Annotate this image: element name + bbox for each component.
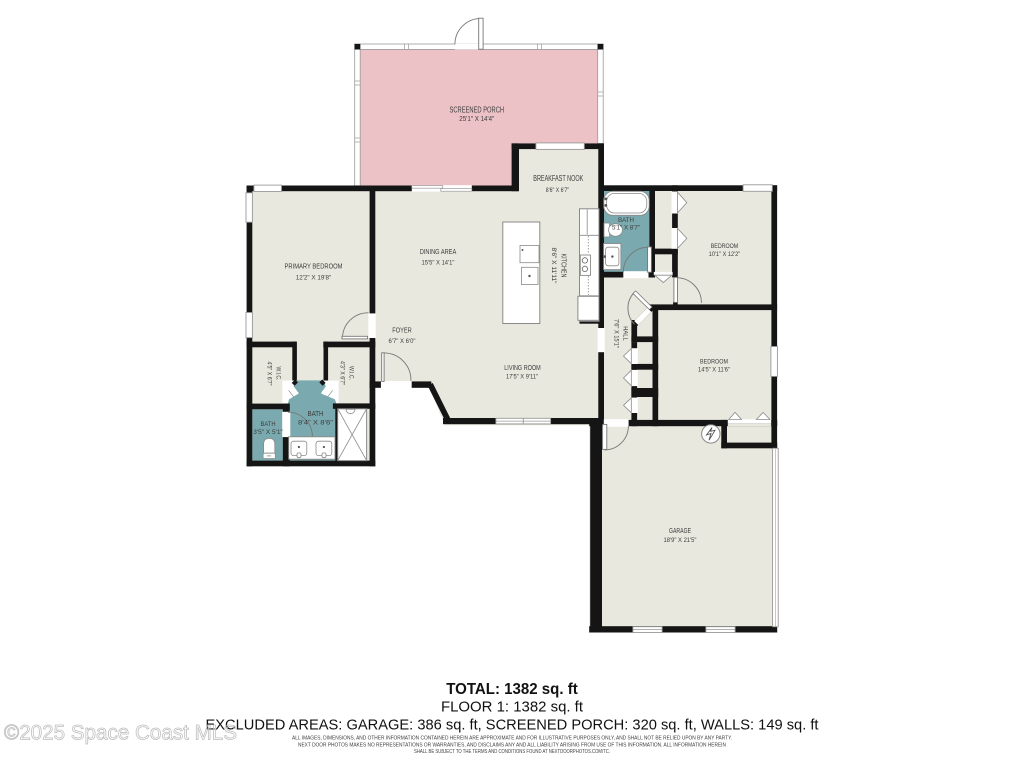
- svg-text:NEXT DOOR PHOTOS MAKES NO REPR: NEXT DOOR PHOTOS MAKES NO REPRESENTATION…: [298, 742, 726, 748]
- svg-text:SHALL BE SUBJECT TO THE TERMS: SHALL BE SUBJECT TO THE TERMS AND CONDIT…: [414, 749, 610, 755]
- svg-text:7'6" X 15'1": 7'6" X 15'1": [613, 319, 620, 348]
- svg-text:15'5" X 14'1": 15'5" X 14'1": [422, 260, 455, 267]
- svg-text:BATH: BATH: [261, 421, 276, 428]
- svg-text:GARAGE: GARAGE: [669, 528, 691, 535]
- svg-text:BATH: BATH: [618, 217, 634, 224]
- svg-text:17'5" X 9'11": 17'5" X 9'11": [506, 373, 538, 380]
- svg-text:FLOOR 1: 1382 sq. ft: FLOOR 1: 1382 sq. ft: [441, 699, 584, 716]
- svg-text:10'1" X 12'2": 10'1" X 12'2": [709, 251, 741, 258]
- svg-text:EXCLUDED AREAS: GARAGE: 386 sq: EXCLUDED AREAS: GARAGE: 386 sq. ft, SCRE…: [206, 717, 820, 734]
- svg-text:W.I.C.: W.I.C.: [348, 366, 355, 380]
- svg-text:4'5" X 6'7": 4'5" X 6'7": [266, 362, 272, 386]
- svg-text:HALL: HALL: [622, 326, 629, 341]
- svg-text:3'5" X 5'1": 3'5" X 5'1": [253, 429, 283, 436]
- svg-text:BEDROOM: BEDROOM: [711, 243, 739, 250]
- svg-text:18'9" X 21'5": 18'9" X 21'5": [664, 537, 697, 544]
- svg-text:BATH: BATH: [308, 411, 324, 418]
- svg-text:12'2" X 19'8": 12'2" X 19'8": [296, 275, 332, 282]
- svg-text:5'1" X 8'7": 5'1" X 8'7": [612, 225, 640, 232]
- svg-text:25'1" X 14'4": 25'1" X 14'4": [459, 114, 494, 123]
- svg-text:W.I.C.: W.I.C.: [275, 367, 282, 381]
- svg-text:8'4" X 8'6": 8'4" X 8'6": [298, 420, 334, 427]
- svg-text:14'5" X 11'6": 14'5" X 11'6": [698, 366, 730, 373]
- svg-text:8'6" X 6'7": 8'6" X 6'7": [546, 187, 570, 194]
- svg-text:4'3" X 6'7": 4'3" X 6'7": [339, 361, 345, 385]
- svg-text:LIVING ROOM: LIVING ROOM: [504, 363, 541, 372]
- svg-text:TOTAL: 1382 sq. ft: TOTAL: 1382 sq. ft: [446, 681, 578, 698]
- svg-text:6'7" X 6'0": 6'7" X 6'0": [389, 338, 417, 345]
- svg-text:BREAKFAST NOOK: BREAKFAST NOOK: [533, 174, 583, 183]
- svg-text:KITCHEN: KITCHEN: [560, 254, 567, 278]
- svg-text:PRIMARY BEDROOM: PRIMARY BEDROOM: [285, 262, 343, 271]
- svg-text:8'6" X 11'11": 8'6" X 11'11": [550, 248, 557, 285]
- svg-text:DINING AREA: DINING AREA: [420, 247, 457, 256]
- svg-text:ALL IMAGES, DIMENSIONS, AND OT: ALL IMAGES, DIMENSIONS, AND OTHER INFORM…: [292, 736, 732, 742]
- svg-text:©2025 Space Coast MLS: ©2025 Space Coast MLS: [4, 722, 237, 745]
- svg-text:BEDROOM: BEDROOM: [700, 359, 728, 366]
- svg-text:FOYER: FOYER: [392, 326, 412, 335]
- svg-text:SCREENED PORCH: SCREENED PORCH: [450, 105, 505, 114]
